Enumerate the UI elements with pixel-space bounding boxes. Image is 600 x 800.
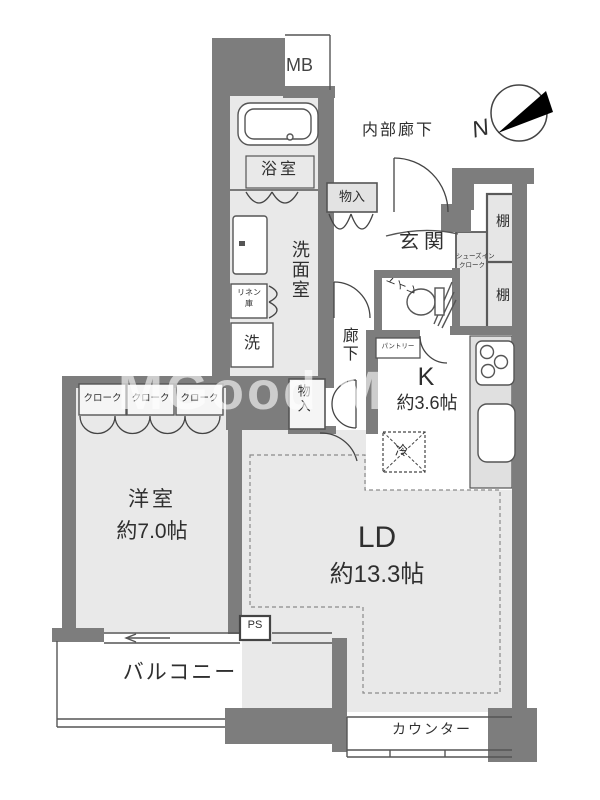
pillar-left	[225, 708, 335, 744]
kitchen-size-label: 約3.6帖	[384, 394, 470, 413]
fridge-label: 冷	[395, 444, 408, 458]
western-room-label: 洋室	[76, 489, 228, 511]
kitchen-sink	[478, 404, 515, 462]
shoes-closet-label-2: クローク	[456, 263, 488, 270]
closet-mid-label: 物入	[296, 384, 310, 414]
corridor-double-door	[332, 380, 356, 428]
pantry-label: パントリー	[377, 344, 419, 351]
corridor-label: 廊下	[339, 327, 356, 363]
ps-label: PS	[240, 620, 270, 632]
shoes-closet-label-1: シューズイン	[456, 254, 488, 261]
living-dining-label: LD	[242, 522, 512, 554]
shelf-lower-label: 棚	[496, 288, 510, 303]
balcony-label: バルコニー	[90, 662, 270, 684]
kitchen-label: K	[406, 364, 446, 390]
bathroom-label: 浴室	[248, 162, 312, 179]
counter-label: カウンター	[352, 722, 512, 737]
cloak-label-3: クローク	[176, 394, 223, 404]
western-room-size-label: 約7.0帖	[76, 521, 228, 543]
washroom-door	[334, 282, 370, 318]
toilet-tank	[435, 288, 444, 315]
cloak-label-2: クローク	[127, 394, 174, 404]
compass	[491, 85, 553, 141]
cloak-label-1: クローク	[79, 394, 126, 404]
shelf-upper-label: 棚	[496, 214, 510, 229]
linen-label-1: リネン	[232, 289, 266, 297]
linen-label-2: 庫	[232, 300, 266, 308]
washer-label: 洗	[231, 336, 273, 353]
vanity-sink	[233, 216, 267, 274]
living-dining-size-label: 約13.3帖	[242, 562, 512, 587]
inner-corridor-label: 内部廊下	[362, 123, 434, 140]
closet-upper-label: 物入	[327, 190, 377, 204]
mb-label: MB	[286, 56, 313, 75]
floor-plan: MB 内部廊下 N 浴室 物入 玄関 棚 棚 シューズイン クローク 洗面室 リ…	[0, 0, 600, 800]
entrance-label: 玄関	[386, 232, 462, 253]
front-door-swing	[394, 158, 448, 212]
closet-upper-bifold	[329, 214, 373, 229]
washroom-label: 洗面室	[290, 240, 309, 336]
